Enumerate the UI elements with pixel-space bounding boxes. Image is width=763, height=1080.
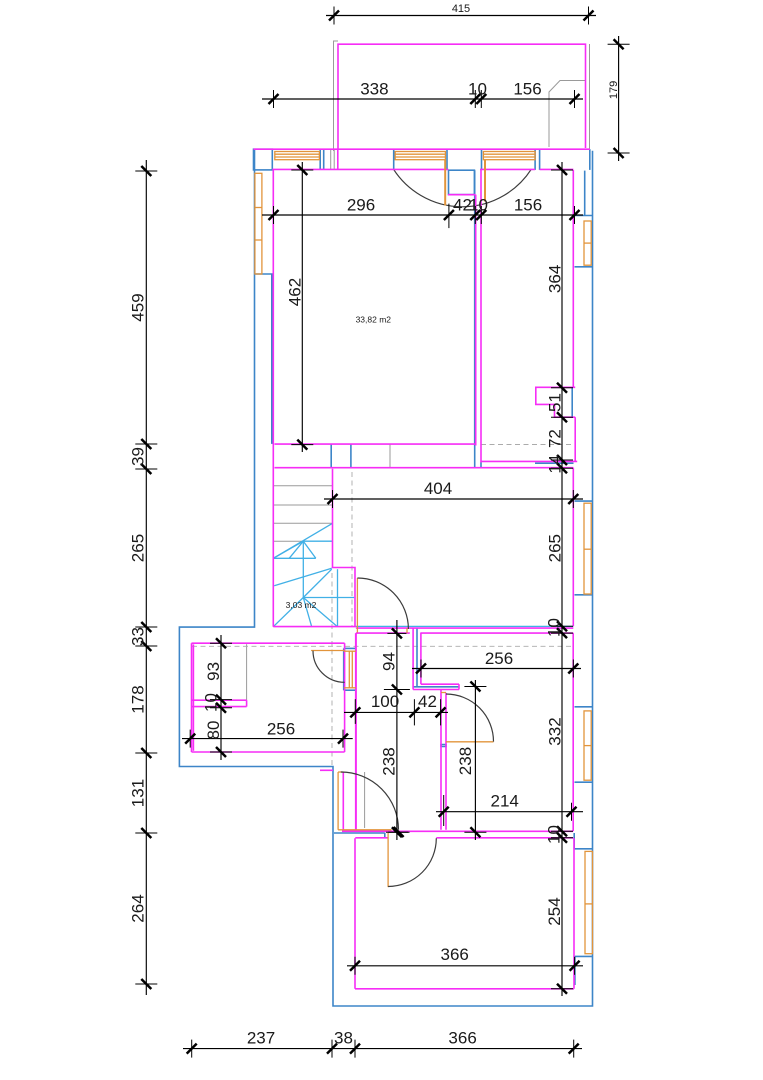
svg-text:256: 256 bbox=[267, 720, 295, 739]
svg-text:33: 33 bbox=[129, 627, 148, 646]
svg-text:72: 72 bbox=[546, 429, 565, 448]
svg-text:238: 238 bbox=[456, 747, 475, 775]
svg-text:338: 338 bbox=[360, 80, 388, 99]
svg-text:156: 156 bbox=[513, 80, 541, 99]
svg-text:238: 238 bbox=[380, 747, 399, 775]
svg-text:100: 100 bbox=[371, 692, 399, 711]
svg-text:10: 10 bbox=[545, 618, 564, 637]
svg-text:256: 256 bbox=[485, 649, 513, 668]
svg-text:39: 39 bbox=[129, 447, 148, 466]
svg-text:93: 93 bbox=[204, 662, 223, 681]
svg-text:237: 237 bbox=[247, 1029, 275, 1048]
svg-text:33,82 m2: 33,82 m2 bbox=[356, 315, 392, 325]
svg-text:131: 131 bbox=[129, 779, 148, 807]
svg-text:366: 366 bbox=[441, 945, 469, 964]
svg-text:214: 214 bbox=[491, 792, 519, 811]
svg-text:462: 462 bbox=[286, 278, 305, 306]
svg-text:459: 459 bbox=[129, 293, 148, 321]
svg-text:10: 10 bbox=[545, 825, 564, 844]
svg-text:364: 364 bbox=[546, 265, 565, 293]
svg-text:179: 179 bbox=[608, 81, 620, 99]
svg-text:296: 296 bbox=[347, 196, 375, 215]
svg-text:265: 265 bbox=[546, 534, 565, 562]
svg-text:80: 80 bbox=[204, 721, 223, 740]
svg-text:10: 10 bbox=[469, 196, 488, 215]
svg-text:156: 156 bbox=[514, 196, 542, 215]
svg-text:178: 178 bbox=[129, 685, 148, 713]
svg-text:366: 366 bbox=[448, 1029, 476, 1048]
svg-text:38: 38 bbox=[334, 1029, 353, 1048]
svg-text:415: 415 bbox=[452, 3, 470, 15]
svg-text:10: 10 bbox=[202, 693, 221, 712]
svg-text:94: 94 bbox=[380, 652, 399, 671]
svg-text:10: 10 bbox=[468, 80, 487, 99]
svg-text:42: 42 bbox=[418, 692, 437, 711]
svg-text:404: 404 bbox=[424, 479, 452, 498]
svg-text:51: 51 bbox=[546, 393, 565, 412]
svg-text:14: 14 bbox=[546, 455, 565, 474]
svg-text:254: 254 bbox=[545, 897, 564, 925]
svg-text:332: 332 bbox=[546, 717, 565, 745]
svg-text:265: 265 bbox=[129, 534, 148, 562]
svg-text:264: 264 bbox=[129, 894, 148, 922]
svg-text:3,03 m2: 3,03 m2 bbox=[286, 600, 317, 610]
